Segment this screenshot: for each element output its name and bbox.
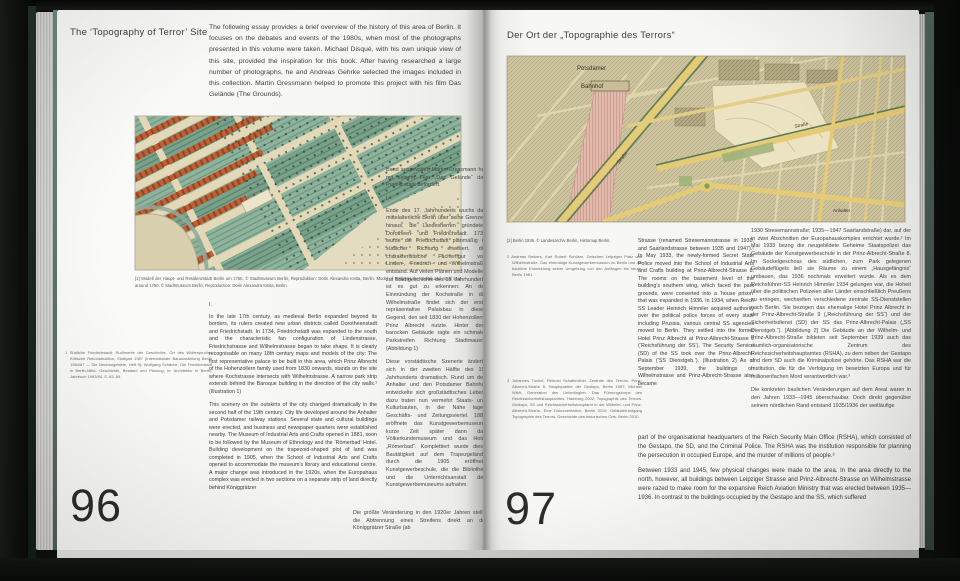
page-stack-fore-edge-left <box>36 12 53 550</box>
book-cover-left-tint <box>28 6 36 572</box>
english-paragraph-2: This scenery on the outskirts of the cit… <box>209 402 377 492</box>
cover-lip-right <box>925 12 934 550</box>
english-wide-paragraph-1: part of the organisational headquarters … <box>638 434 911 461</box>
german-main-column: 1930 Stresemannstraße; 1935—1947 Saarlan… <box>751 228 911 416</box>
english-bottom-wide-block: part of the organisational headquarters … <box>638 434 911 509</box>
map-label-bahnhof: Bahnhof <box>581 84 604 90</box>
page-title-english: The ‘Topography of Terror’ Site <box>70 27 207 38</box>
german-column-last-paragraph: Die konkreten baulichen Veränderungen au… <box>751 387 911 410</box>
german-paragraph-1: Ende des 17. Jahrhunderts wuchs das mitt… <box>386 208 486 354</box>
page-number-97: 97 <box>505 483 557 535</box>
page-number-96: 96 <box>70 480 122 532</box>
english-paragraph-1: In the late 17th century, as medieval Be… <box>209 314 377 397</box>
german-bottom-wide-lines: Die größte Veränderung in den 1920er Jah… <box>353 510 487 533</box>
section-marker-german: I. <box>386 196 486 204</box>
german-carryover-paragraph: Band ausgewählt. Martin Gressmann hat mi… <box>386 167 486 190</box>
section-marker-english: I. <box>209 302 377 310</box>
backdrop-bottom <box>0 558 960 581</box>
backdrop-top <box>0 0 960 10</box>
page-title-german: Der Ort der „Topographie des Terrors“ <box>507 30 675 41</box>
german-column-paragraph: 1930 Stresemannstraße; 1935—1947 Saarlan… <box>751 228 911 381</box>
intro-paragraph: The following essay provides a brief ove… <box>209 22 461 100</box>
footnote-3: 3 Johannes Tuchel, Reinold Schattenfroh,… <box>507 378 642 420</box>
map-label-anhalter: Anhalter <box>833 208 851 213</box>
footnote-2: 2 Andreas Bekiers, Karl Robert Schütze, … <box>507 254 642 278</box>
book-cover-right <box>934 0 960 581</box>
berlin-1936-map-illustration: Potsdamer Bahnhof Straße Straße Anhalter <box>507 56 905 222</box>
footnote-1: 1 Südliche Friedrichstadt: Rudimente der… <box>65 350 212 380</box>
english-main-column: I. In the late 17th century, as medieval… <box>209 302 377 498</box>
right-page: Der Ort der „Topographie des Terrors“ <box>483 10 919 550</box>
english-wide-paragraph-2: Between 1933 and 1945, few physical chan… <box>638 467 911 503</box>
book-photo-scene: The ‘Topography of Terror’ Site The foll… <box>0 0 960 581</box>
map-label-potsdamer: Potsdamer <box>577 66 606 72</box>
german-paragraph-2: Diese vorstädtische Szenerie änderte sic… <box>386 359 486 489</box>
figure-berlin-1936-map: Potsdamer Bahnhof Straße Straße Anhalter <box>507 56 905 222</box>
german-translation-column: Band ausgewählt. Martin Gressmann hat mi… <box>386 167 486 496</box>
english-translation-column: Strasse (renamed Stresemannstrasse in 19… <box>638 238 754 388</box>
left-page: The ‘Topography of Terror’ Site The foll… <box>57 10 483 550</box>
